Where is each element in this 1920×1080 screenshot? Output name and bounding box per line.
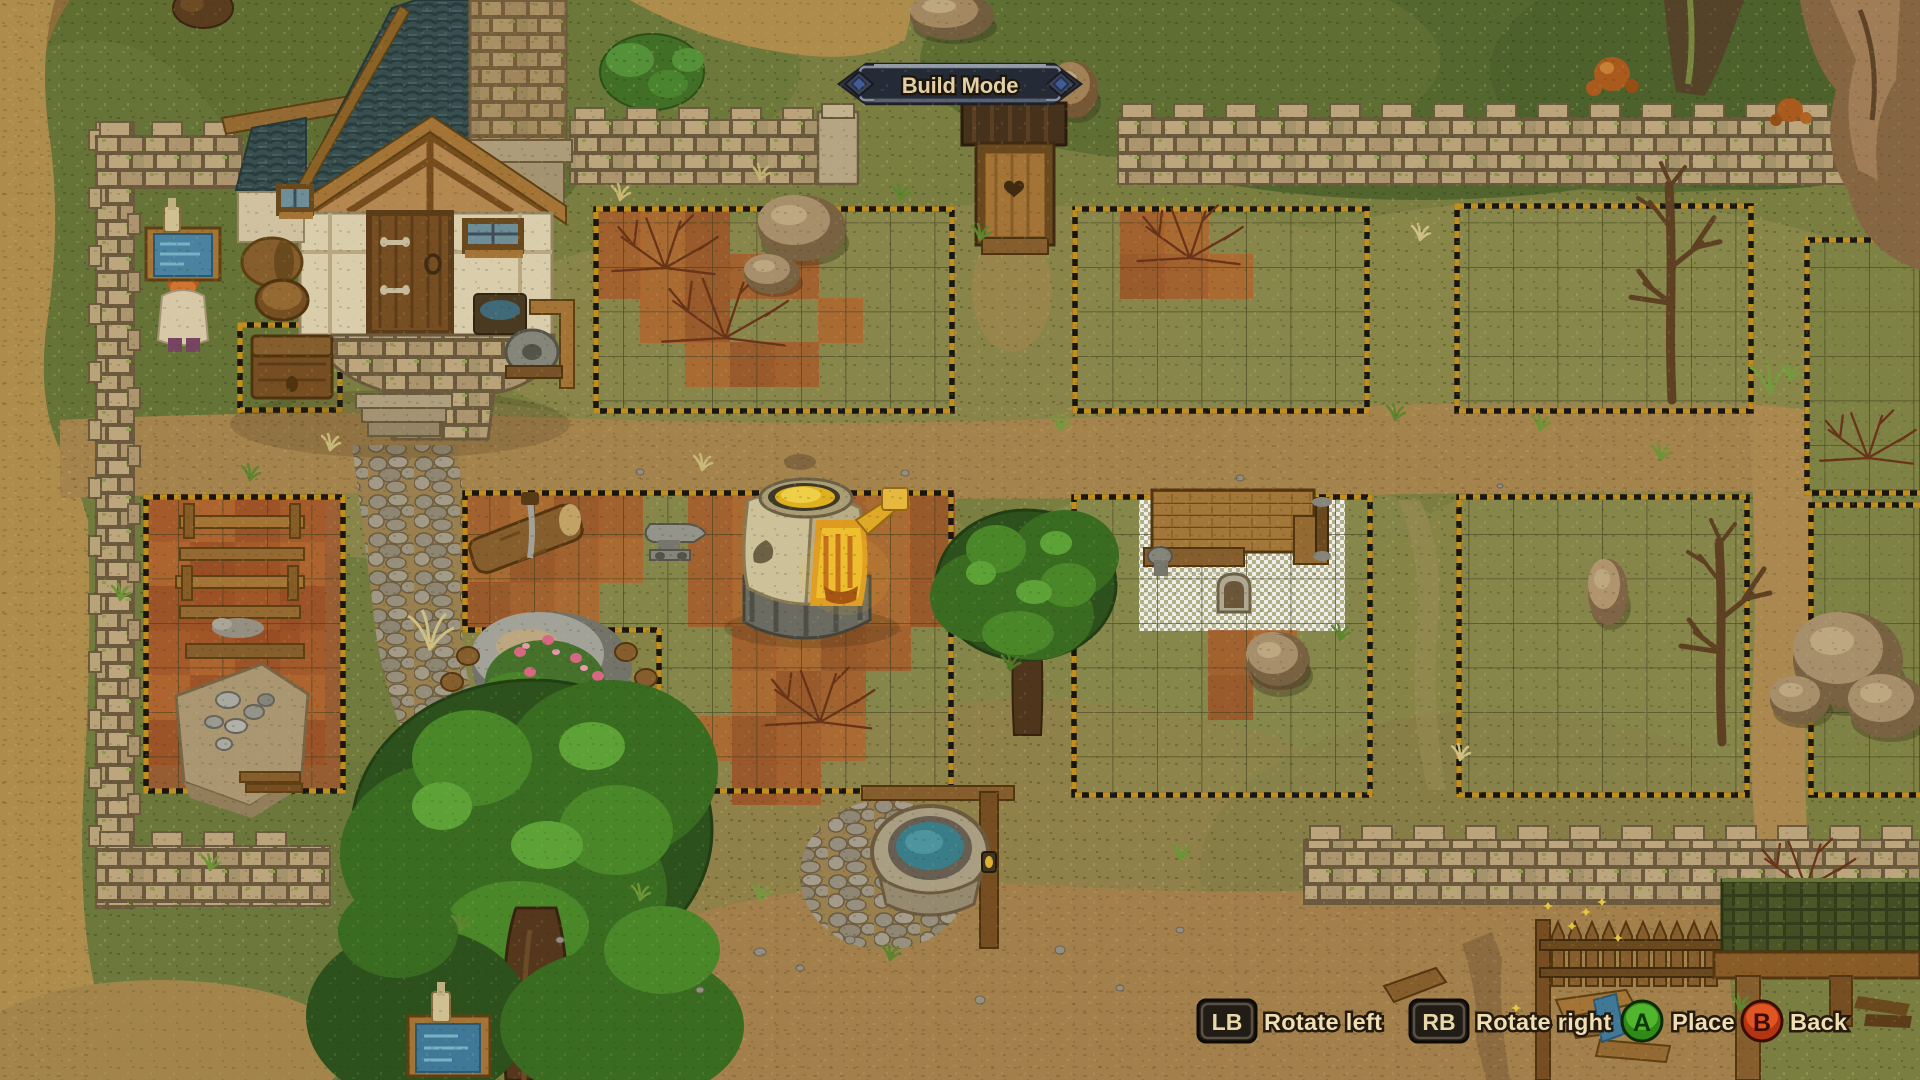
svg-text:B: B: [1753, 1009, 1771, 1037]
svg-text:Place: Place: [1672, 1009, 1735, 1035]
svg-text:RB: RB: [1422, 1009, 1455, 1035]
svg-text:Back: Back: [1790, 1009, 1848, 1035]
svg-text:LB: LB: [1212, 1009, 1243, 1035]
svg-text:Rotate left: Rotate left: [1264, 1009, 1382, 1035]
svg-text:Rotate right: Rotate right: [1476, 1009, 1611, 1035]
svg-text:A: A: [1633, 1009, 1651, 1037]
